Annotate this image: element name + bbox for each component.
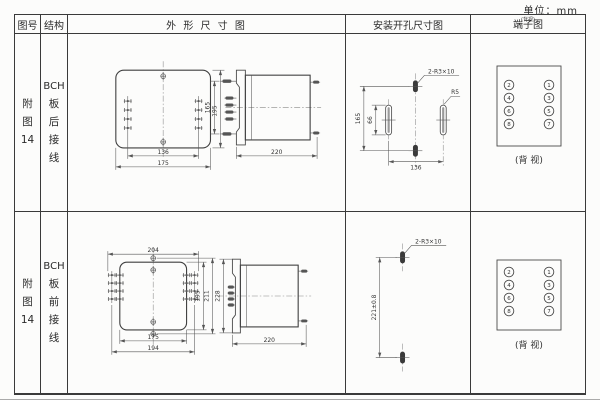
col-header-mounting-label: 安装开孔尺寸图 [373,17,443,32]
spec-table: 图号 结构 外 形 尺 寸 图 安装开孔尺寸图 (背视) 端子图 附 图 14 … [14,14,586,395]
row2-terminal-cell: 2 4 6 8 1 3 5 7 (背 视) [471,212,585,393]
col-header-terminal-label: 端子图 [513,21,543,31]
dim-side-depth: 220 [271,148,283,155]
dim-mount-height: 165 [355,112,362,124]
row1-figure-no: 附 图 14 [15,34,41,212]
col-header-terminal-stack: (背视) 端子图 [513,18,543,31]
col-header-mounting: 安装开孔尺寸图 [346,15,471,34]
col-header-structure-label: 结构 [44,17,64,32]
terminal-8: 8 [507,122,511,128]
row2-mounting-drawing: 221±0.8 2-R3×10 [346,213,470,392]
row1-terminal-drawing: 2 4 6 8 1 3 5 7 (背 视) [471,35,585,211]
row2-outline-drawing: 204 195 211 175 194 [68,213,345,392]
dim-front-height-inner: 195 [195,290,202,302]
row1-outline-cell: 195 136 175 [68,34,346,212]
terminal-5b: 5 [547,296,551,302]
dim-mount-height2: 221±0.8 [371,294,378,320]
row2-structure-text: BCH 板 前 接 线 [43,261,64,344]
label-radius: R5 [451,89,459,96]
row2-figure-no-text: 附 图 14 [21,279,34,326]
terminal-7b: 7 [547,309,551,315]
dim-front-width-top: 204 [147,247,159,254]
rear-view-caption: (背 视) [515,154,543,166]
dim-front-width-inner2: 175 [147,334,159,341]
terminal-8b: 8 [507,309,511,315]
dim-front-height-outer: 211 [203,290,210,302]
col-header-terminal: (背视) 端子图 [471,15,585,34]
row2-figure-no: 附 图 14 [15,212,41,393]
dim-mount-slot-height: 66 [367,116,374,124]
row1-mounting-cell: 165 66 136 2-R3×10 R5 [346,34,471,212]
row2-mounting-cell: 221±0.8 2-R3×10 [346,212,471,393]
row1-figure-no-text: 附 图 14 [21,99,34,146]
row1-outline-drawing: 195 136 175 [68,35,345,211]
rear-view-caption2: (背 视) [515,339,543,351]
dim-front-width-outer2: 194 [147,345,159,352]
row1-mounting-drawing: 165 66 136 2-R3×10 R5 [346,35,470,211]
dim-mount-width: 136 [410,164,422,171]
col-header-structure: 结构 [41,15,68,34]
terminal-6b: 6 [507,296,511,302]
dim-front-height: 195 [211,105,218,117]
label-slot-spec2: 2-R3×10 [415,238,442,245]
terminal-6: 6 [507,109,511,115]
terminal-1b: 1 [547,270,551,276]
terminal-3b: 3 [547,283,551,289]
terminal-3: 3 [547,96,551,102]
row2-structure: BCH 板 前 接 线 [41,212,68,393]
row1-structure-text: BCH 板 后 接 线 [43,81,64,164]
terminal-2b: 2 [507,270,511,276]
dim-front-width-outer: 175 [157,159,169,166]
row1-terminal-cell: 2 4 6 8 1 3 5 7 (背 视) [471,34,585,212]
terminal-4b: 4 [507,283,511,289]
row1-structure: BCH 板 后 接 线 [41,34,68,212]
col-header-figure-label: 图号 [18,17,38,32]
terminal-2: 2 [507,83,511,89]
terminal-4: 4 [507,96,511,102]
terminal-7: 7 [547,122,551,128]
dim-side-height2: 228 [214,290,221,302]
row2-outline-cell: 204 195 211 175 194 [68,212,346,393]
col-header-figure: 图号 [15,15,41,34]
terminal-5: 5 [547,109,551,115]
row2-terminal-drawing: 2 4 6 8 1 3 5 7 (背 视) [471,213,585,392]
page: 单位：mm 图号 结构 外 形 尺 寸 图 安装开孔尺寸图 (背视) 端子图 附… [0,0,600,400]
dim-front-width-inner: 136 [157,148,169,155]
dim-side-depth2: 220 [264,337,276,344]
terminal-1: 1 [547,83,551,89]
col-header-outline-label: 外 形 尺 寸 图 [166,17,247,32]
dim-side-height: 165 [204,101,211,113]
label-slot-spec: 2-R3×10 [428,68,455,75]
col-header-outline: 外 形 尺 寸 图 [68,15,346,34]
